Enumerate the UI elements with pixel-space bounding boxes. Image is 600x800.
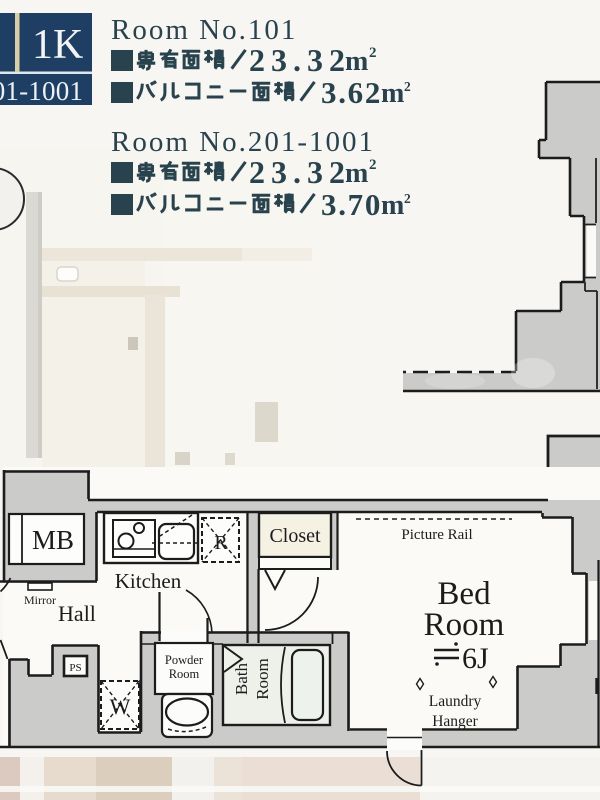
- svg-text:6J: 6J: [462, 642, 489, 675]
- svg-text:MB: MB: [32, 525, 74, 555]
- svg-text:Mirror: Mirror: [24, 593, 56, 607]
- svg-text:Hanger: Hanger: [432, 713, 478, 730]
- svg-text:3.62: 3.62: [321, 75, 382, 110]
- svg-text:Hall: Hall: [58, 601, 96, 626]
- svg-text:m: m: [345, 46, 368, 77]
- svg-text:R: R: [214, 532, 228, 554]
- svg-text:Laundry: Laundry: [429, 693, 482, 710]
- svg-text:W: W: [110, 694, 131, 719]
- svg-text:m: m: [345, 158, 368, 189]
- svg-text:Kitchen: Kitchen: [115, 569, 182, 593]
- svg-text:Bath: Bath: [232, 662, 251, 695]
- svg-text:Room: Room: [169, 667, 200, 681]
- svg-text:2: 2: [404, 191, 411, 206]
- svg-text:2: 2: [369, 157, 377, 173]
- svg-text:201-1001: 201-1001: [0, 76, 83, 106]
- svg-text:23.32: 23.32: [249, 42, 351, 78]
- svg-text:2: 2: [369, 45, 377, 61]
- svg-text:2: 2: [404, 79, 411, 94]
- svg-text:23.32: 23.32: [249, 154, 351, 190]
- svg-text:Powder: Powder: [165, 653, 204, 667]
- svg-text:3.70: 3.70: [321, 187, 382, 222]
- svg-text:Room: Room: [424, 607, 505, 643]
- svg-text:PS: PS: [69, 662, 81, 674]
- svg-text:Picture Rail: Picture Rail: [401, 527, 472, 543]
- svg-text:m: m: [381, 190, 404, 221]
- svg-text:1K: 1K: [32, 22, 83, 68]
- svg-text:Room: Room: [253, 658, 272, 700]
- svg-text:m: m: [381, 78, 404, 109]
- svg-text:Closet: Closet: [269, 525, 321, 547]
